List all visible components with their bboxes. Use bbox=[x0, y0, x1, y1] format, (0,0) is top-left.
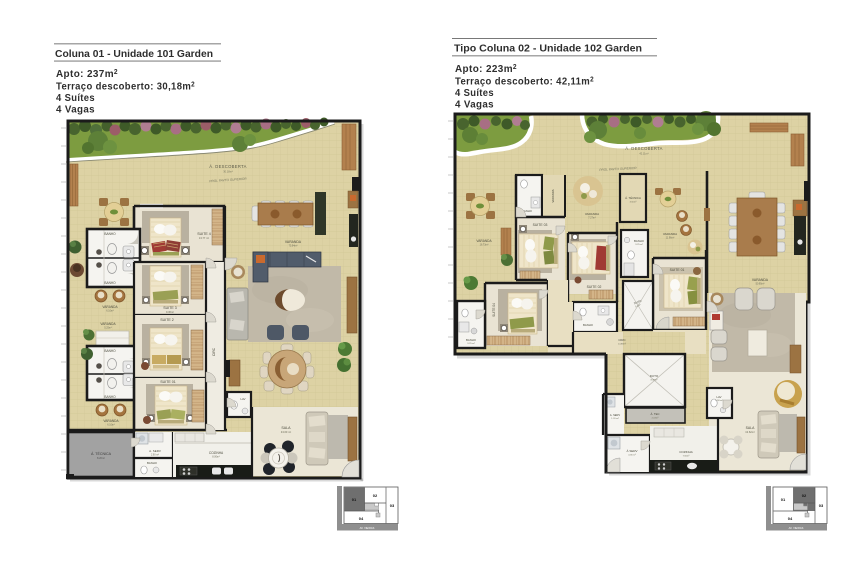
svg-text:CIRC: CIRC bbox=[212, 347, 216, 356]
svg-text:3.50m²: 3.50m² bbox=[630, 200, 637, 203]
svg-text:VARANDA: VARANDA bbox=[103, 419, 119, 423]
svg-text:43.60 m²: 43.60 m² bbox=[281, 430, 291, 434]
svg-text:4 Vagas: 4 Vagas bbox=[455, 99, 494, 111]
svg-text:7.56m²: 7.56m² bbox=[683, 454, 690, 457]
svg-text:SALA: SALA bbox=[746, 426, 755, 430]
svg-text:LAV: LAV bbox=[240, 397, 245, 401]
svg-text:VARANDA: VARANDA bbox=[285, 240, 302, 244]
svg-text:A. SERV: A. SERV bbox=[610, 413, 620, 417]
svg-text:8.39m²: 8.39m² bbox=[651, 378, 658, 381]
svg-text:04: 04 bbox=[788, 516, 793, 521]
svg-text:4 Suítes: 4 Suítes bbox=[455, 87, 494, 99]
svg-text:SUITE 01: SUITE 01 bbox=[670, 268, 685, 272]
svg-text:4 Suítes: 4 Suítes bbox=[56, 92, 95, 104]
svg-text:Á SERV: Á SERV bbox=[627, 449, 638, 453]
svg-text:Á. TEC: Á. TEC bbox=[651, 412, 660, 416]
svg-text:16.73m²: 16.73m² bbox=[480, 244, 489, 247]
svg-text:CIRC: CIRC bbox=[618, 338, 626, 342]
svg-text:DUTO: DUTO bbox=[650, 374, 659, 378]
svg-text:VARANDA: VARANDA bbox=[476, 239, 492, 243]
svg-text:Tipo Coluna 02 - Unidade 102 G: Tipo Coluna 02 - Unidade 102 Garden bbox=[454, 43, 642, 55]
svg-text:4.36 m²: 4.36 m² bbox=[628, 453, 636, 456]
svg-text:02: 02 bbox=[802, 493, 807, 498]
svg-text:3.25 m²: 3.25 m² bbox=[635, 243, 643, 246]
svg-text:AV. VIEIRAS: AV. VIEIRAS bbox=[360, 526, 375, 530]
svg-text:1.20 m²: 1.20 m² bbox=[611, 417, 619, 420]
svg-text:Á. DESCOBERTA: Á. DESCOBERTA bbox=[209, 164, 247, 169]
svg-text:LAV: LAV bbox=[716, 395, 721, 399]
svg-text:VARANDA: VARANDA bbox=[585, 212, 599, 216]
svg-text:AV. VIEIRAS: AV. VIEIRAS bbox=[789, 526, 804, 530]
svg-text:50.95m²: 50.95m² bbox=[756, 283, 765, 286]
svg-text:42.11m²: 42.11m² bbox=[639, 152, 648, 156]
svg-text:COZINHA: COZINHA bbox=[209, 451, 224, 455]
svg-text:8.20m²: 8.20m² bbox=[97, 456, 105, 460]
svg-text:SUITE 3: SUITE 3 bbox=[163, 306, 177, 310]
svg-text:BANHO: BANHO bbox=[634, 239, 645, 243]
svg-text:8.00m²: 8.00m² bbox=[212, 456, 220, 459]
svg-text:SUITE 02: SUITE 02 bbox=[587, 285, 602, 289]
svg-text:Á. TÉCNICA: Á. TÉCNICA bbox=[625, 195, 641, 200]
svg-text:75.94m²: 75.94m² bbox=[289, 245, 298, 248]
svg-text:BANHO: BANHO bbox=[104, 349, 116, 353]
svg-text:BANHO: BANHO bbox=[583, 323, 594, 327]
svg-text:VARANDA: VARANDA bbox=[551, 189, 555, 202]
svg-text:6.10m²: 6.10m² bbox=[106, 310, 114, 313]
svg-text:BANHO: BANHO bbox=[104, 281, 116, 285]
svg-text:SUITE 01: SUITE 01 bbox=[160, 380, 176, 384]
svg-text:2.90 m²: 2.90 m² bbox=[151, 453, 159, 456]
svg-text:BANHO: BANHO bbox=[466, 338, 477, 342]
svg-text:7.27m²: 7.27m² bbox=[588, 216, 596, 219]
svg-text:Coluna 01 - Unidade 101 Garden: Coluna 01 - Unidade 101 Garden bbox=[55, 48, 213, 60]
svg-text:4 Vagas: 4 Vagas bbox=[56, 104, 95, 116]
svg-text:BANHO: BANHO bbox=[104, 232, 116, 236]
svg-text:Terraço descoberto: 30,18m2: Terraço descoberto: 30,18m2 bbox=[56, 81, 195, 93]
svg-text:BANHO: BANHO bbox=[104, 395, 116, 399]
svg-text:01: 01 bbox=[352, 497, 357, 502]
svg-text:9.36m²: 9.36m² bbox=[166, 310, 174, 314]
svg-text:3.25 m²: 3.25 m² bbox=[467, 342, 475, 345]
svg-text:02: 02 bbox=[373, 493, 378, 498]
svg-text:13.62m²: 13.62m² bbox=[745, 430, 755, 434]
svg-text:03: 03 bbox=[819, 503, 824, 508]
svg-text:SUITE 2: SUITE 2 bbox=[160, 318, 174, 322]
svg-text:Apto: 223m2: Apto: 223m2 bbox=[455, 63, 517, 75]
svg-text:30.18m²: 30.18m² bbox=[223, 170, 233, 174]
svg-text:Á. TÉCNICA: Á. TÉCNICA bbox=[91, 451, 112, 456]
svg-text:Á. DESCOBERTA: Á. DESCOBERTA bbox=[625, 146, 663, 151]
svg-text:1.58 m²: 1.58 m² bbox=[715, 399, 723, 402]
svg-text:01: 01 bbox=[781, 497, 786, 502]
svg-text:COZINHA: COZINHA bbox=[679, 450, 693, 454]
svg-text:SALA: SALA bbox=[281, 426, 291, 430]
svg-text:Terraço descoberto: 42,11m2: Terraço descoberto: 42,11m2 bbox=[455, 76, 594, 88]
svg-text:SUITE 04: SUITE 04 bbox=[492, 303, 496, 317]
svg-text:SUITE 4: SUITE 4 bbox=[197, 232, 211, 236]
svg-text:BANHO: BANHO bbox=[147, 461, 158, 465]
svg-text:VARANDA: VARANDA bbox=[102, 305, 118, 309]
svg-text:A. SERV: A. SERV bbox=[149, 449, 161, 453]
svg-text:11.96m²: 11.96m² bbox=[666, 236, 675, 239]
svg-text:14.88m²: 14.88m² bbox=[618, 342, 626, 345]
svg-text:SUITE 03: SUITE 03 bbox=[533, 223, 548, 227]
svg-text:VARANDA: VARANDA bbox=[752, 278, 769, 282]
svg-text:5.25m²: 5.25m² bbox=[104, 327, 112, 330]
svg-text:VARANDA: VARANDA bbox=[663, 232, 677, 236]
svg-text:13.77 m²: 13.77 m² bbox=[199, 236, 209, 240]
svg-text:04: 04 bbox=[359, 516, 364, 521]
svg-text:03: 03 bbox=[390, 503, 395, 508]
svg-text:2.03m²: 2.03m² bbox=[652, 416, 659, 419]
svg-text:6.10m²: 6.10m² bbox=[107, 424, 115, 427]
svg-text:VARANDA: VARANDA bbox=[100, 322, 116, 326]
svg-text:Apto: 237m2: Apto: 237m2 bbox=[56, 68, 118, 80]
